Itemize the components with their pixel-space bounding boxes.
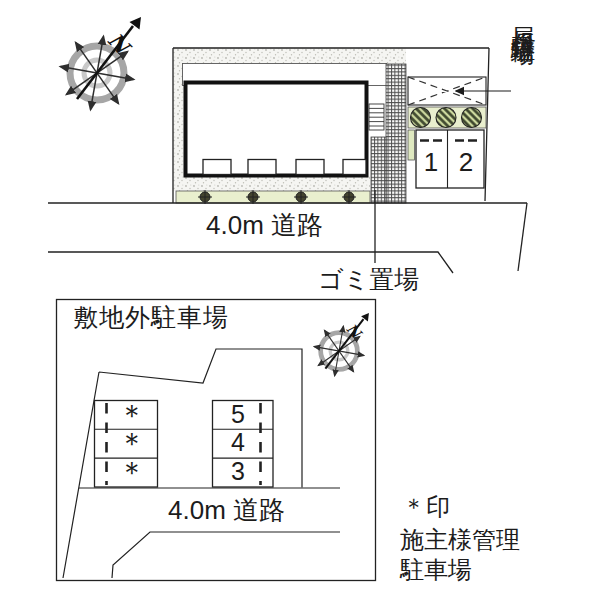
parking-space-1-label: 1 [424, 149, 438, 175]
legend-owner-managed: 施主様管理 [400, 528, 520, 552]
parking-space-3-label: 3 [231, 459, 245, 484]
parking-space-4-label: 4 [231, 430, 245, 455]
parking-space-2-label: 2 [459, 149, 473, 175]
road-width-label-upper: 4.0m 道路 [206, 212, 323, 238]
compass-rose-small: N [314, 313, 369, 376]
garbage-area-label: ゴミ置場 [318, 267, 419, 292]
starred-space-label-1: ＊ [118, 401, 147, 430]
hedge-strip [408, 107, 486, 128]
side-planting-strip [408, 130, 415, 160]
parking-space-5-label: 5 [231, 402, 245, 427]
road-width-label-lower: 4.0m 道路 [168, 497, 285, 523]
legend-star-mark: ＊印 [402, 495, 450, 519]
offsite-parking-title: 敷地外駐車場 [73, 305, 229, 330]
legend-parking: 駐車場 [400, 558, 472, 582]
compass-rose: N [61, 17, 141, 109]
site-plan-page: N [0, 0, 600, 600]
starred-space-label-3: ＊ [118, 458, 147, 487]
covered-bicycle-parking-label: 屋根付駐輪場 [511, 8, 535, 26]
offsite-parking-plan: N [57, 300, 376, 581]
stairs-icon [369, 104, 384, 130]
site-plan-drawing: N [0, 0, 600, 600]
starred-space-label-2: ＊ [118, 429, 147, 458]
